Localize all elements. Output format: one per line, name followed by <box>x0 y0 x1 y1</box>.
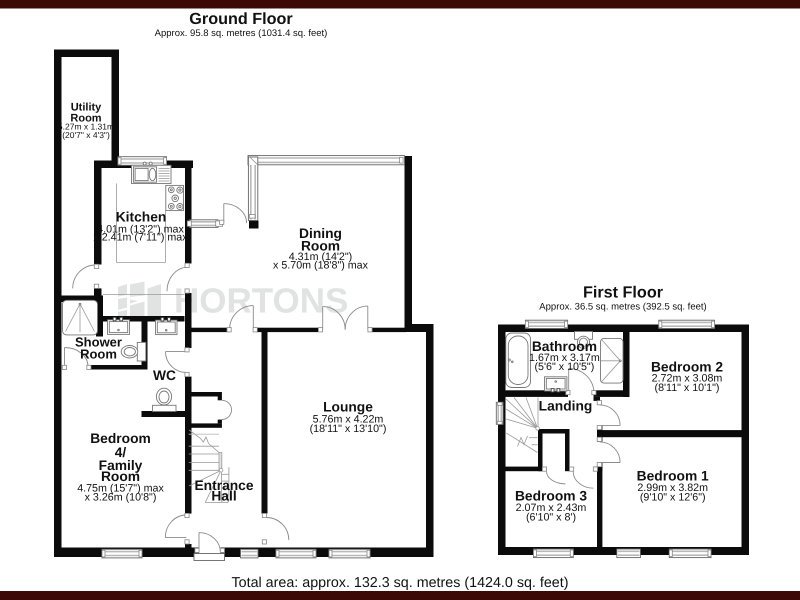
svg-text:Kitchen: Kitchen <box>116 210 167 225</box>
svg-text:(9'10" x 12'6"): (9'10" x 12'6") <box>640 491 706 503</box>
svg-text:(20'7" x 4'3"): (20'7" x 4'3") <box>62 130 110 140</box>
svg-text:(6'10" x 8'): (6'10" x 8') <box>526 511 576 523</box>
svg-text:x 2.41m (7'11") max: x 2.41m (7'11") max <box>93 232 188 244</box>
svg-text:x 5.70m (18'8") max: x 5.70m (18'8") max <box>273 260 369 272</box>
svg-text:Hall: Hall <box>211 489 236 504</box>
svg-text:x 3.26m (10'8"): x 3.26m (10'8") <box>85 491 157 503</box>
svg-text:Total area: approx. 132.3 sq.: Total area: approx. 132.3 sq. metres (14… <box>232 575 569 591</box>
svg-text:HORTONS: HORTONS <box>174 282 348 321</box>
svg-text:(5'6" x 10'5"): (5'6" x 10'5") <box>535 361 595 373</box>
svg-text:Approx. 36.5 sq. metres (392.5: Approx. 36.5 sq. metres (392.5 sq. feet) <box>539 302 706 313</box>
svg-text:Ground Floor: Ground Floor <box>189 10 293 28</box>
svg-text:Room: Room <box>80 346 117 361</box>
svg-text:First Floor: First Floor <box>583 284 664 302</box>
svg-text:(18'11" x 13'10"): (18'11" x 13'10") <box>310 423 387 435</box>
svg-text:(8'11" x 10'1"): (8'11" x 10'1") <box>655 382 720 394</box>
svg-text:Landing: Landing <box>539 399 593 414</box>
svg-text:Lounge: Lounge <box>323 400 373 415</box>
svg-text:WC: WC <box>153 368 176 383</box>
svg-text:Bedroom: Bedroom <box>90 431 151 446</box>
svg-text:Approx. 95.8 sq. metres (1031.: Approx. 95.8 sq. metres (1031.4 sq. feet… <box>155 28 328 39</box>
